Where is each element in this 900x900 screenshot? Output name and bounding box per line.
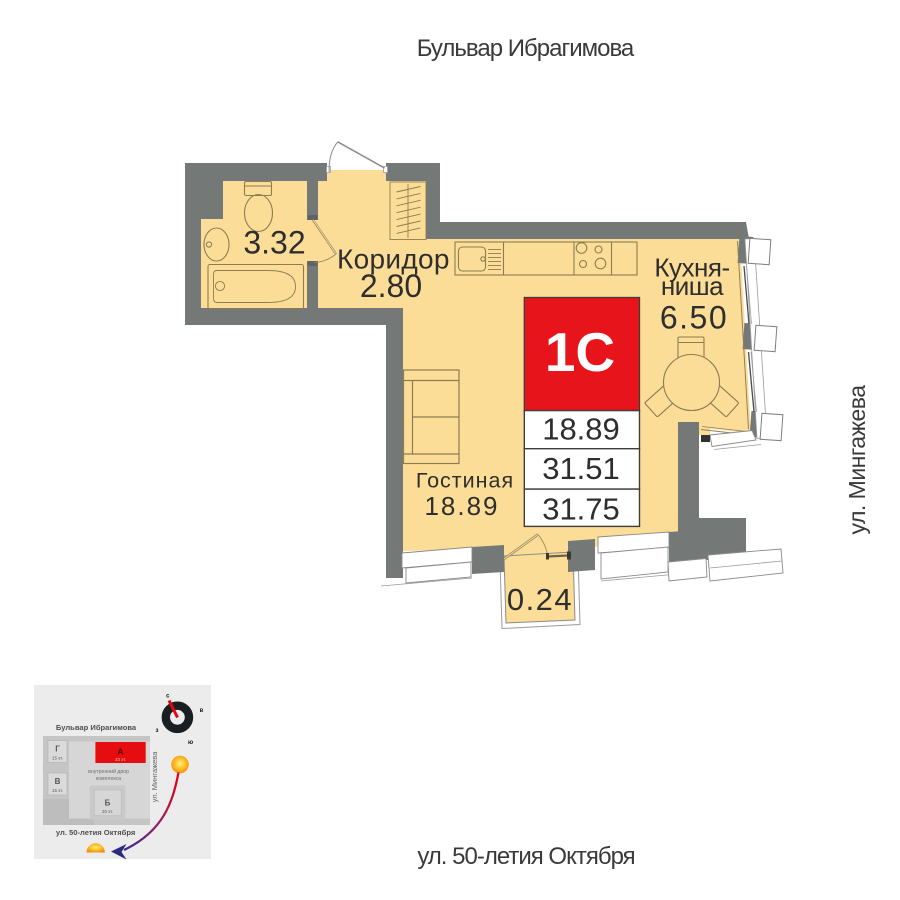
svg-text:Б: Б <box>105 799 111 808</box>
svg-text:з: з <box>156 728 159 734</box>
svg-text:2.80: 2.80 <box>360 268 422 304</box>
svg-text:20 эт.: 20 эт. <box>102 809 113 814</box>
svg-text:ул. Мингажева: ул. Мингажева <box>844 385 870 535</box>
svg-text:ул. Мингажева: ул. Мингажева <box>150 751 159 803</box>
svg-text:18.89: 18.89 <box>424 491 499 521</box>
svg-text:33 эт.: 33 эт. <box>115 757 126 762</box>
svg-text:Бульвар Ибрагимова: Бульвар Ибрагимова <box>417 35 635 62</box>
svg-text:31.51: 31.51 <box>542 451 620 486</box>
svg-text:18.89: 18.89 <box>542 411 620 446</box>
svg-text:1С: 1С <box>545 321 615 383</box>
svg-text:А: А <box>117 747 123 757</box>
svg-text:в: в <box>200 708 204 714</box>
svg-text:ул. 50-летия Октября: ул. 50-летия Октября <box>56 828 135 837</box>
svg-text:комплекса: комплекса <box>96 776 121 782</box>
svg-text:31.75: 31.75 <box>542 491 620 526</box>
svg-text:ю: ю <box>188 740 193 746</box>
svg-text:15 эт.: 15 эт. <box>52 756 63 761</box>
svg-text:Г: Г <box>55 745 60 754</box>
svg-text:В: В <box>55 777 61 786</box>
svg-text:внутренний двор: внутренний двор <box>88 768 129 775</box>
svg-text:6.50: 6.50 <box>660 300 728 336</box>
svg-text:0.24: 0.24 <box>507 582 573 617</box>
svg-text:3.32: 3.32 <box>243 224 305 260</box>
svg-text:15 эт.: 15 эт. <box>52 788 63 793</box>
svg-text:ниша: ниша <box>661 271 724 301</box>
svg-text:Бульвар Ибрагимова: Бульвар Ибрагимова <box>56 723 137 732</box>
svg-text:Гостиная: Гостиная <box>416 469 514 493</box>
svg-text:ул. 50-летия Октября: ул. 50-летия Октября <box>417 843 634 870</box>
